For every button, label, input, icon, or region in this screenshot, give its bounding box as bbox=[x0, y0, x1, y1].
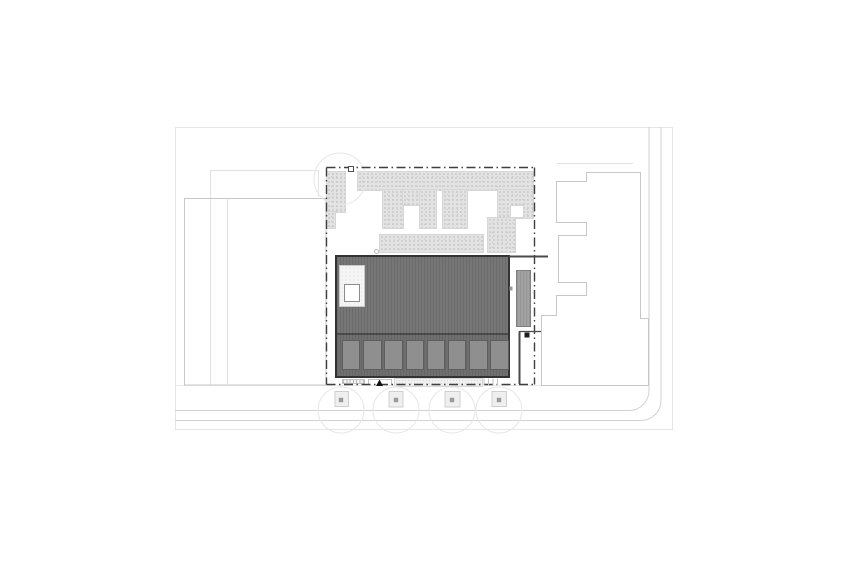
left-neighbor-building bbox=[185, 199, 327, 386]
entrance-arrow bbox=[376, 380, 383, 387]
gate-marker bbox=[349, 167, 354, 172]
tree-trunk-1 bbox=[339, 398, 343, 402]
tree-trunk-3 bbox=[450, 398, 454, 402]
tree-trunk-4 bbox=[497, 398, 501, 402]
tree-canopy-top bbox=[314, 153, 366, 205]
left-neighbor-rear-outline bbox=[211, 171, 319, 386]
tree-trunk-2 bbox=[394, 398, 398, 402]
corner-marker bbox=[525, 333, 530, 338]
garden-drain-dot bbox=[375, 250, 379, 254]
property-boundary bbox=[327, 168, 535, 385]
site-plan-canvas bbox=[0, 0, 850, 567]
right-neighbor-building bbox=[542, 173, 649, 386]
linework-layer bbox=[0, 0, 850, 567]
roof-edge-tick bbox=[510, 287, 513, 291]
